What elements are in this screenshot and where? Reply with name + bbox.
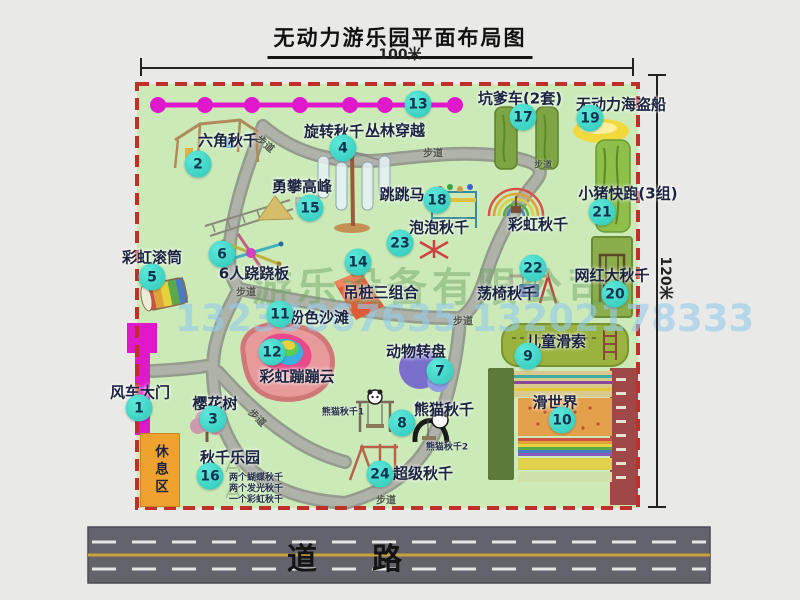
- height-dimension-label: 120米: [656, 256, 676, 299]
- dimension-tick-top-left: [140, 58, 142, 76]
- label-super-swing: 超级秋千: [393, 463, 453, 484]
- badge-19: 19: [577, 105, 604, 132]
- badge-22: 22: [520, 255, 547, 282]
- label-swing-chair: 荡椅秋千: [477, 283, 537, 304]
- label-six-person-seesaw: 6人跷跷板: [219, 263, 289, 284]
- badge-15: 15: [297, 195, 324, 222]
- badge-5: 5: [139, 264, 166, 291]
- badge-21: 21: [589, 199, 616, 226]
- badge-23: 23: [387, 230, 414, 257]
- label-rainbow-bounce-cloud: 彩虹蹦蹦云: [259, 366, 334, 387]
- label-pink-beach: 粉色沙滩: [289, 307, 349, 328]
- badge-20: 20: [602, 281, 629, 308]
- label-bubble-swing: 泡泡秋千: [409, 217, 469, 238]
- badge-3: 3: [200, 406, 227, 433]
- label-panda-swing-1: 熊猫秋千1: [322, 405, 364, 418]
- trail-label-4: 步道: [236, 284, 256, 299]
- label-rainbow-swing: 彩虹秋千: [508, 214, 568, 235]
- badge-14: 14: [345, 249, 372, 276]
- trail-label-3: 步道: [534, 158, 552, 171]
- badge-9: 9: [515, 343, 542, 370]
- swing-park-sub-3: 一个彩虹秋千: [229, 492, 283, 505]
- badge-7: 7: [427, 358, 454, 385]
- trail-label-7: 步道: [376, 492, 396, 507]
- label-climbing-peak: 勇攀高峰: [272, 176, 332, 197]
- badge-13: 13: [405, 91, 432, 118]
- label-jungle-crossing: 丛林穿越: [365, 120, 425, 141]
- label-hexagon-swing: 六角秋千: [198, 130, 258, 151]
- width-dimension-label: 100米: [378, 44, 421, 64]
- label-jumping-horse: 跳跳马: [379, 184, 424, 205]
- rest-area-label: 休息区: [150, 444, 170, 497]
- badge-10: 10: [549, 407, 576, 434]
- dimension-tick-right-bottom: [648, 506, 666, 508]
- dimension-line-top: [140, 67, 634, 69]
- badge-11: 11: [267, 301, 294, 328]
- park-layout-poster: 游乐设备有限公司 13233867635 13202178333 无动力游乐园平…: [0, 0, 800, 600]
- badge-4: 4: [330, 135, 357, 162]
- trail-label-2: 步道: [423, 145, 443, 160]
- dimension-tick-top-right: [632, 58, 634, 76]
- label-panda-swing: 熊猫秋千: [414, 399, 474, 420]
- label-hanging-post-combo: 吊桩三组合: [343, 282, 418, 303]
- badge-18: 18: [424, 187, 451, 214]
- badge-16: 16: [197, 463, 224, 490]
- badge-2: 2: [185, 151, 212, 178]
- badge-1: 1: [126, 395, 153, 422]
- trail-label-5: 步道: [453, 313, 473, 328]
- dimension-tick-right-top: [648, 74, 666, 76]
- label-panda-swing-2: 熊猫秋千2: [426, 440, 468, 453]
- badge-24: 24: [367, 461, 394, 488]
- badge-17: 17: [510, 104, 537, 131]
- badge-8: 8: [389, 410, 416, 437]
- badge-12: 12: [259, 339, 286, 366]
- road-label: 道路: [287, 534, 457, 578]
- badge-6: 6: [209, 241, 236, 268]
- rest-area-box: 休息区: [140, 433, 180, 507]
